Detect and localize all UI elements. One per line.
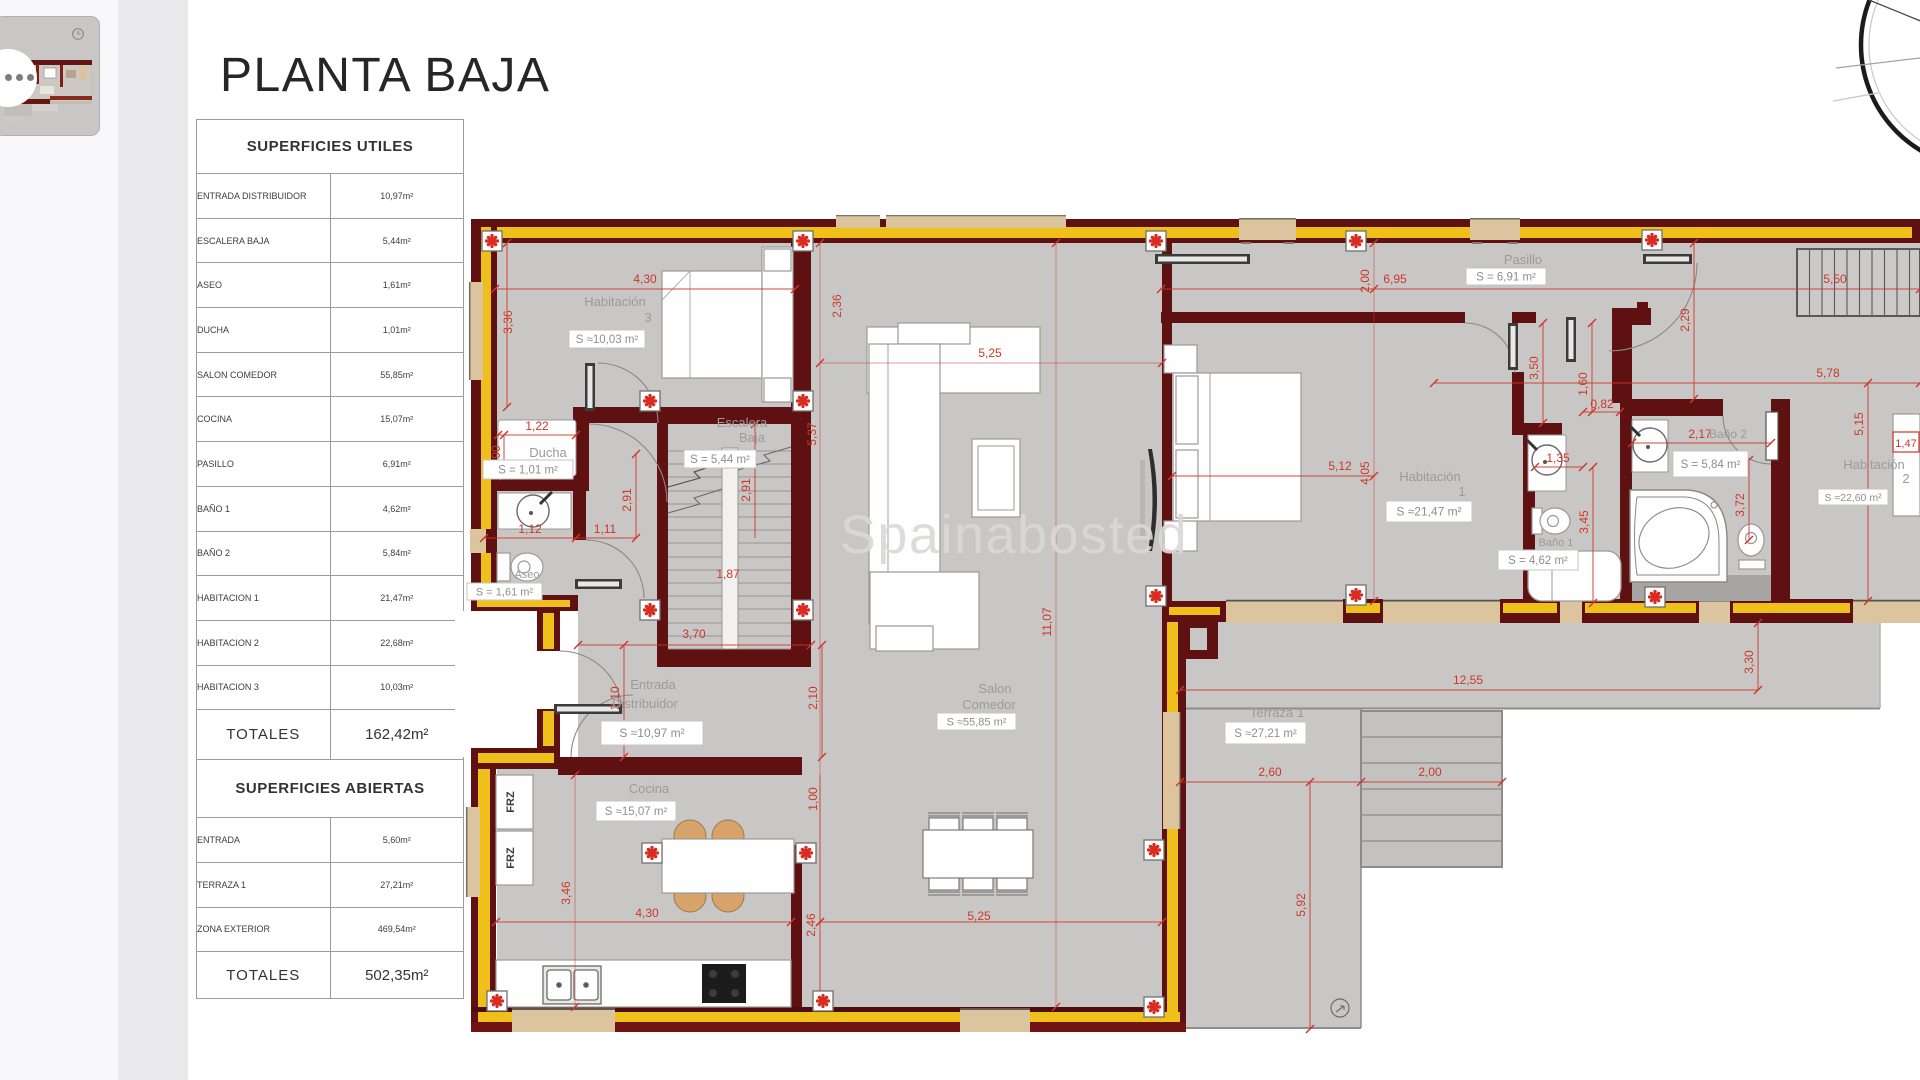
svg-text:Habitación: Habitación <box>584 294 645 309</box>
svg-text:4,30: 4,30 <box>635 906 659 920</box>
svg-text:6,95: 6,95 <box>1383 272 1407 286</box>
svg-text:Comedor: Comedor <box>962 697 1016 712</box>
svg-text:S = 6,91 m²: S = 6,91 m² <box>1476 272 1536 284</box>
svg-text:2,46: 2,46 <box>804 913 818 937</box>
svg-text:Habitación: Habitación <box>1843 457 1904 472</box>
svg-text:1,60: 1,60 <box>1576 372 1590 396</box>
svg-text:S ≈22,60 m²: S ≈22,60 m² <box>1824 492 1882 504</box>
svg-text:3: 3 <box>644 310 651 325</box>
svg-text:Baño 1: Baño 1 <box>1539 537 1574 549</box>
svg-text:2,36: 2,36 <box>830 294 844 318</box>
svg-text:1,00: 1,00 <box>806 787 820 811</box>
svg-text:2,91: 2,91 <box>620 488 634 512</box>
svg-text:3,50: 3,50 <box>1527 356 1541 380</box>
svg-text:5,25: 5,25 <box>978 346 1002 360</box>
svg-text:S = 4,62 m²: S = 4,62 m² <box>1508 555 1568 567</box>
svg-text:Entrada: Entrada <box>630 677 676 692</box>
svg-text:Baja: Baja <box>739 430 766 445</box>
svg-text:Terraza 1: Terraza 1 <box>1250 705 1304 720</box>
svg-text:0,82: 0,82 <box>1590 397 1614 411</box>
svg-text:3,36: 3,36 <box>501 310 515 334</box>
svg-text:FRZ: FRZ <box>505 791 517 813</box>
svg-text:2,10: 2,10 <box>806 686 820 710</box>
svg-text:3,70: 3,70 <box>682 627 706 641</box>
svg-text:S = 1,61 m²: S = 1,61 m² <box>476 587 534 599</box>
svg-text:5,50: 5,50 <box>1823 272 1847 286</box>
svg-text:5,25: 5,25 <box>967 909 991 923</box>
svg-text:3,45: 3,45 <box>1577 510 1591 534</box>
svg-text:Pasillo: Pasillo <box>1504 252 1542 267</box>
svg-text:12,55: 12,55 <box>1453 673 1483 687</box>
svg-text:1,35: 1,35 <box>1546 451 1570 465</box>
svg-text:2,29: 2,29 <box>1678 308 1692 332</box>
svg-text:1,22: 1,22 <box>525 419 549 433</box>
svg-text:2,00: 2,00 <box>1418 765 1442 779</box>
svg-text:S ≈10,03 m²: S ≈10,03 m² <box>576 334 639 346</box>
svg-text:S ≈15,07 m²: S ≈15,07 m² <box>605 806 668 818</box>
svg-text:FRZ: FRZ <box>505 847 517 869</box>
svg-text:3,46: 3,46 <box>559 881 573 905</box>
svg-text:2: 2 <box>1902 471 1909 486</box>
svg-text:Ducha: Ducha <box>529 445 567 460</box>
svg-text:S ≈55,85 m²: S ≈55,85 m² <box>947 717 1007 729</box>
svg-text:5,92: 5,92 <box>1294 893 1308 917</box>
svg-text:S ≈27,21 m²: S ≈27,21 m² <box>1234 728 1297 740</box>
svg-text:Aseo: Aseo <box>514 569 539 581</box>
svg-text:1: 1 <box>1458 484 1465 499</box>
svg-text:1,47: 1,47 <box>1895 438 1916 450</box>
svg-text:S ≈10,97 m²: S ≈10,97 m² <box>619 726 684 740</box>
svg-text:2,91: 2,91 <box>739 478 753 502</box>
svg-text:S = 5,84 m²: S = 5,84 m² <box>1681 459 1741 471</box>
svg-text:Habitación: Habitación <box>1399 469 1460 484</box>
svg-text:Escalera: Escalera <box>717 415 768 430</box>
svg-text:2,60: 2,60 <box>1258 765 1282 779</box>
svg-text:3,30: 3,30 <box>1742 650 1756 674</box>
svg-text:3,72: 3,72 <box>1733 493 1747 517</box>
svg-text:Distribuidor: Distribuidor <box>612 696 678 711</box>
svg-text:1,11: 1,11 <box>594 522 617 536</box>
svg-text:Baño 2: Baño 2 <box>1709 427 1747 441</box>
svg-text:Cocina: Cocina <box>629 781 670 796</box>
svg-text:5,78: 5,78 <box>1816 366 1840 380</box>
svg-text:5,15: 5,15 <box>1852 412 1866 436</box>
svg-text:4,30: 4,30 <box>633 272 657 286</box>
svg-text:5,37: 5,37 <box>805 422 819 446</box>
svg-text:5,12: 5,12 <box>1328 459 1352 473</box>
svg-text:Spainabosted: Spainabosted <box>840 505 1188 565</box>
svg-text:2,00: 2,00 <box>1358 269 1372 293</box>
svg-text:S = 1,01 m²: S = 1,01 m² <box>498 465 558 477</box>
svg-text:11,07: 11,07 <box>1040 607 1054 636</box>
svg-text:4,05: 4,05 <box>1358 461 1372 485</box>
svg-text:S = 5,44 m²: S = 5,44 m² <box>690 454 750 466</box>
svg-text:1,12: 1,12 <box>518 522 542 536</box>
svg-text:1,87: 1,87 <box>716 567 740 581</box>
svg-text:Salon: Salon <box>978 681 1011 696</box>
svg-text:S ≈21,47 m²: S ≈21,47 m² <box>1396 505 1461 519</box>
